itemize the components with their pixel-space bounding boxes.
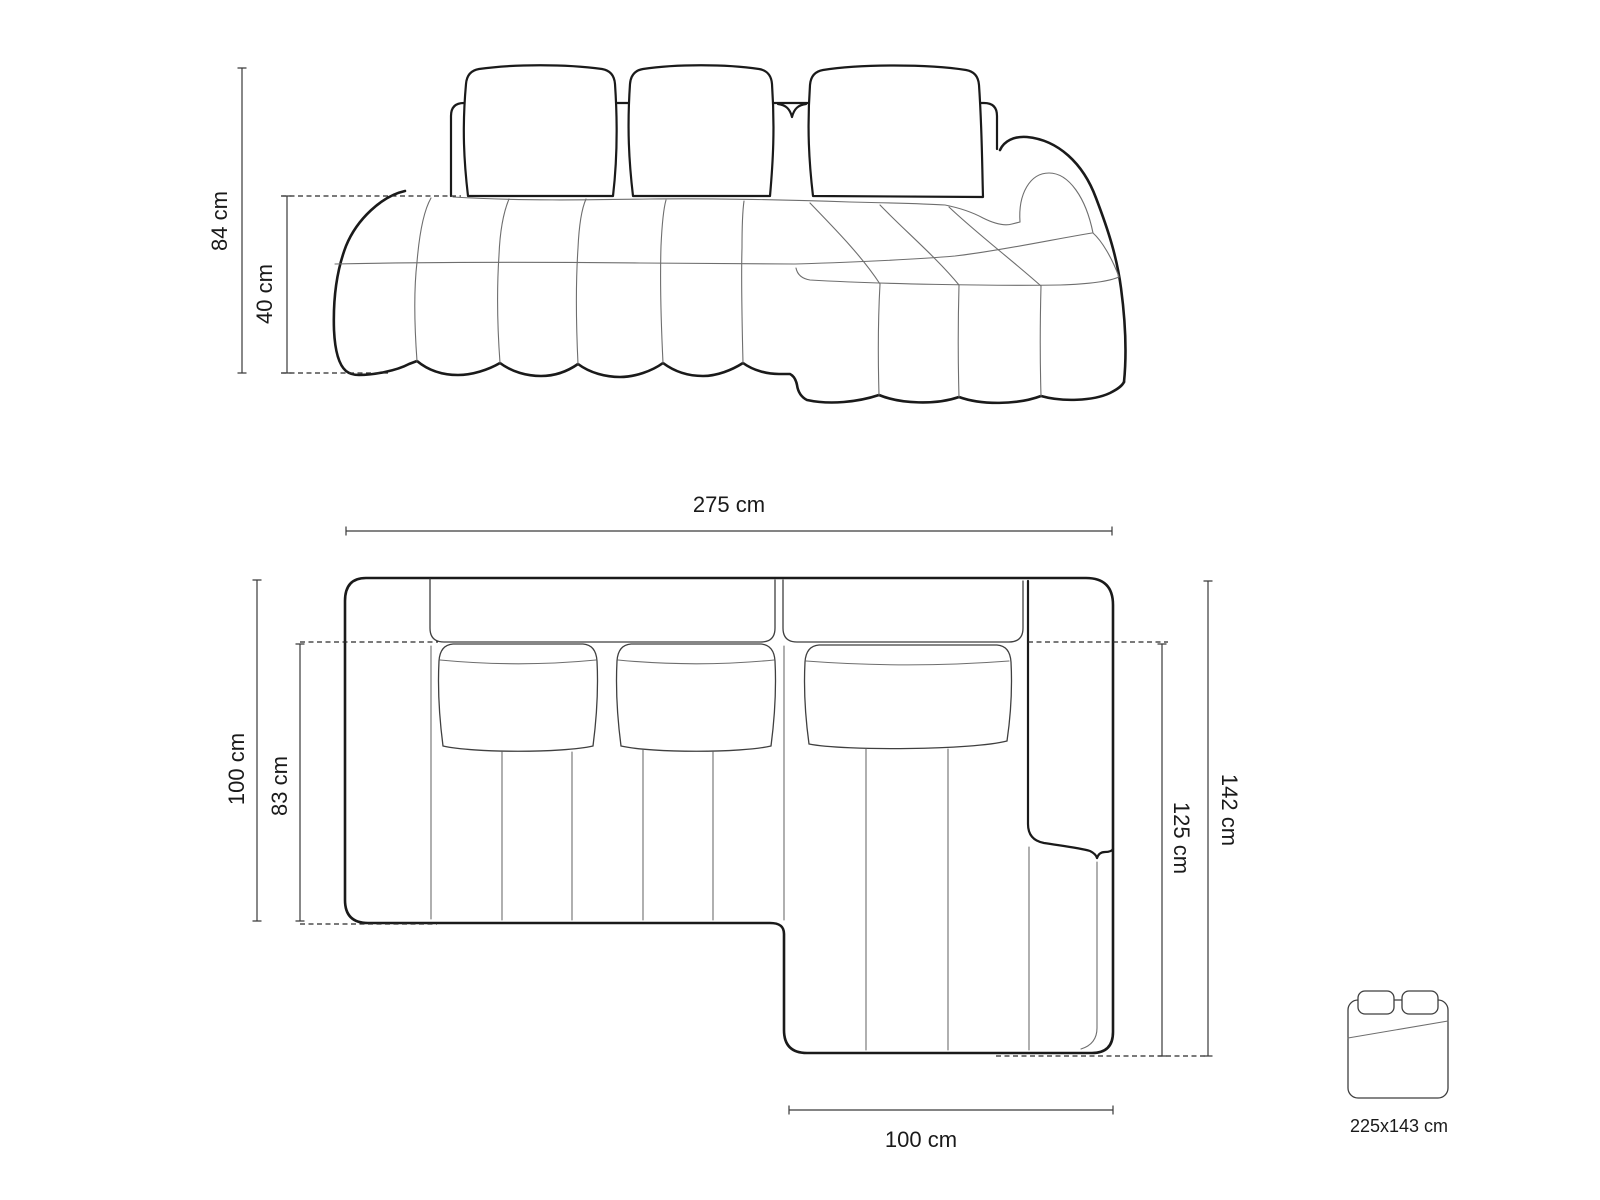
plan-backrest-section-2 (783, 580, 1023, 642)
plan-armrest-chaise-junction (1097, 849, 1113, 858)
plan-armrest (1028, 581, 1097, 858)
plan-cushion-2 (617, 644, 776, 751)
sofa-dimension-diagram: 84 cm 40 cm (0, 0, 1600, 1200)
top-plan-view: 275 cm 100 cm 83 cm 142 cm 125 cm 100 cm (224, 492, 1242, 1152)
dim-plan-width: 275 cm (346, 492, 1112, 536)
front-seat-outline (334, 191, 1124, 403)
sleeping-area-info: 225x143 cm (1348, 991, 1448, 1136)
front-chaise-diagonal-seams (810, 203, 1041, 286)
dim-plan-chaise-depth: 125 cm (1158, 644, 1195, 1056)
dim-label-plan-total-depth: 142 cm (1217, 774, 1242, 846)
front-seat-top-edge (453, 197, 1020, 225)
dim-label-plan-chaise-width: 100 cm (885, 1127, 957, 1152)
dim-label-front-seat-height: 40 cm (252, 264, 277, 324)
front-elevation-view: 84 cm 40 cm (207, 65, 1125, 403)
dim-front-seat-height: 40 cm (252, 196, 292, 373)
dim-label-front-height: 84 cm (207, 191, 232, 251)
sleeping-area-size-label: 225x143 cm (1350, 1116, 1448, 1136)
bed-pillow-right-icon (1402, 991, 1438, 1014)
front-back-cushion-2 (629, 65, 774, 196)
diagram-canvas: 84 cm 40 cm (0, 0, 1600, 1200)
bed-duvet-line-icon (1348, 1021, 1448, 1038)
front-back-cushion-3 (809, 66, 983, 198)
front-chaise-seams (878, 284, 1041, 397)
front-armrest-inner-arch (1020, 173, 1093, 233)
front-seat-mid-seam (335, 233, 1092, 264)
dim-label-plan-width: 275 cm (693, 492, 765, 517)
front-backrest-seam (778, 104, 806, 117)
bed-outline-icon (1348, 1000, 1448, 1098)
dim-front-height: 84 cm (207, 68, 247, 373)
front-back-cushion-1 (464, 65, 617, 196)
dim-plan-seat-depth: 83 cm (267, 644, 305, 921)
dim-plan-side-depth: 100 cm (224, 580, 262, 921)
plan-chaise-side-seam (1081, 862, 1097, 1049)
dim-plan-total-depth: 142 cm (1204, 581, 1243, 1056)
dim-plan-chaise-width: 100 cm (789, 1106, 1113, 1153)
plan-cushion-1 (439, 644, 598, 751)
dim-label-plan-side-depth: 100 cm (224, 733, 249, 805)
front-armrest-outline (1000, 137, 1125, 382)
dim-label-plan-seat-depth: 83 cm (267, 756, 292, 816)
front-seat-seams-left (415, 198, 744, 364)
dim-label-plan-chaise-depth: 125 cm (1169, 802, 1194, 874)
bed-pillow-left-icon (1358, 991, 1394, 1014)
plan-cushion-3 (805, 645, 1012, 749)
bed-icon (1348, 991, 1448, 1098)
plan-backrest-section-1 (430, 579, 775, 642)
